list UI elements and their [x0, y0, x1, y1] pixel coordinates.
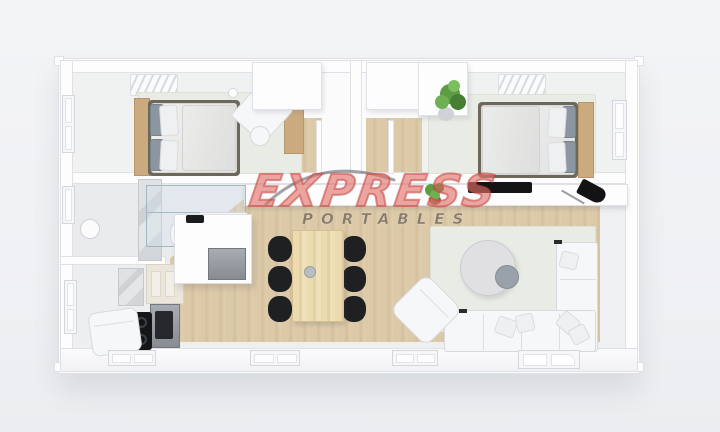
bottom-window-3 — [392, 350, 438, 366]
fridge-front — [208, 248, 246, 280]
sofa-corner-bracket — [459, 309, 467, 313]
headboard-shelf-right — [578, 102, 594, 178]
dining-chair — [268, 266, 292, 292]
dining-table — [292, 230, 344, 322]
window-left-bedroom — [62, 95, 75, 153]
oven — [150, 304, 180, 348]
ceiling-vent-icon — [498, 74, 546, 96]
pillow-white — [159, 104, 179, 136]
small-appliance-black — [186, 215, 204, 223]
duvet-left — [182, 105, 236, 171]
sliding-door-left — [316, 120, 322, 174]
potted-plant-icon — [432, 78, 470, 124]
round-basin — [80, 219, 100, 239]
wall-top — [60, 60, 638, 73]
tv-black — [468, 182, 532, 193]
nesting-side-table — [495, 265, 519, 289]
window-bathroom — [62, 186, 75, 224]
dining-chair — [268, 296, 292, 322]
dining-chair — [342, 236, 366, 262]
wall-closet-divider — [350, 60, 362, 174]
pillow-white — [547, 142, 567, 174]
floorplan-render: EXPRESS PORTABLES — [0, 0, 720, 432]
bottom-window-2 — [250, 350, 300, 366]
sofa-pillow — [514, 312, 535, 333]
floor-strip-right — [600, 206, 626, 344]
duvet-right — [482, 106, 540, 174]
sliding-door-right — [388, 120, 394, 174]
table-centerpiece — [304, 266, 316, 278]
dining-chair — [268, 236, 292, 262]
closet-right — [366, 62, 422, 110]
sofa-corner-bracket — [554, 240, 562, 244]
pillow-white — [159, 140, 179, 172]
small-plant-icon — [422, 178, 448, 206]
pillow-white — [547, 106, 567, 138]
table-lamp-icon — [228, 88, 238, 98]
hall-wood-right — [366, 118, 422, 174]
window-kitchen — [64, 280, 77, 334]
desk-chair-left — [250, 126, 270, 146]
dining-chair — [342, 296, 366, 322]
dining-chair — [342, 266, 366, 292]
bottom-window-1 — [108, 350, 156, 366]
closet-left — [252, 62, 322, 110]
bottom-glass-door — [518, 350, 580, 369]
marble-splashback — [118, 268, 144, 306]
window-right-bedroom — [612, 100, 627, 160]
